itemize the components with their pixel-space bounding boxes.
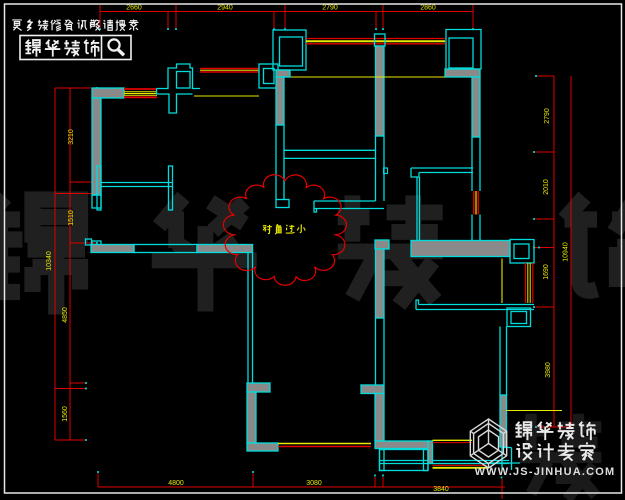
svg-text:3080: 3080 xyxy=(306,480,322,487)
svg-text:2790: 2790 xyxy=(322,5,338,12)
svg-text:2660: 2660 xyxy=(126,5,142,12)
svg-text:2940: 2940 xyxy=(217,5,233,12)
svg-text:3980: 3980 xyxy=(545,362,552,378)
svg-text:10340: 10340 xyxy=(46,251,53,271)
svg-text:4800: 4800 xyxy=(168,480,184,487)
svg-text:2010: 2010 xyxy=(543,179,550,195)
svg-text:4850: 4850 xyxy=(62,307,69,323)
svg-text:2860: 2860 xyxy=(420,5,436,12)
svg-text:WWW.JS-JINHUA.COM: WWW.JS-JINHUA.COM xyxy=(475,466,616,478)
svg-text:2790: 2790 xyxy=(544,108,551,124)
svg-text:1560: 1560 xyxy=(62,406,69,422)
svg-text:1510: 1510 xyxy=(68,210,75,226)
svg-text:1690: 1690 xyxy=(543,264,550,280)
svg-text:3840: 3840 xyxy=(433,486,449,493)
svg-text:3210: 3210 xyxy=(68,129,75,145)
svg-text:10940: 10940 xyxy=(563,242,570,262)
